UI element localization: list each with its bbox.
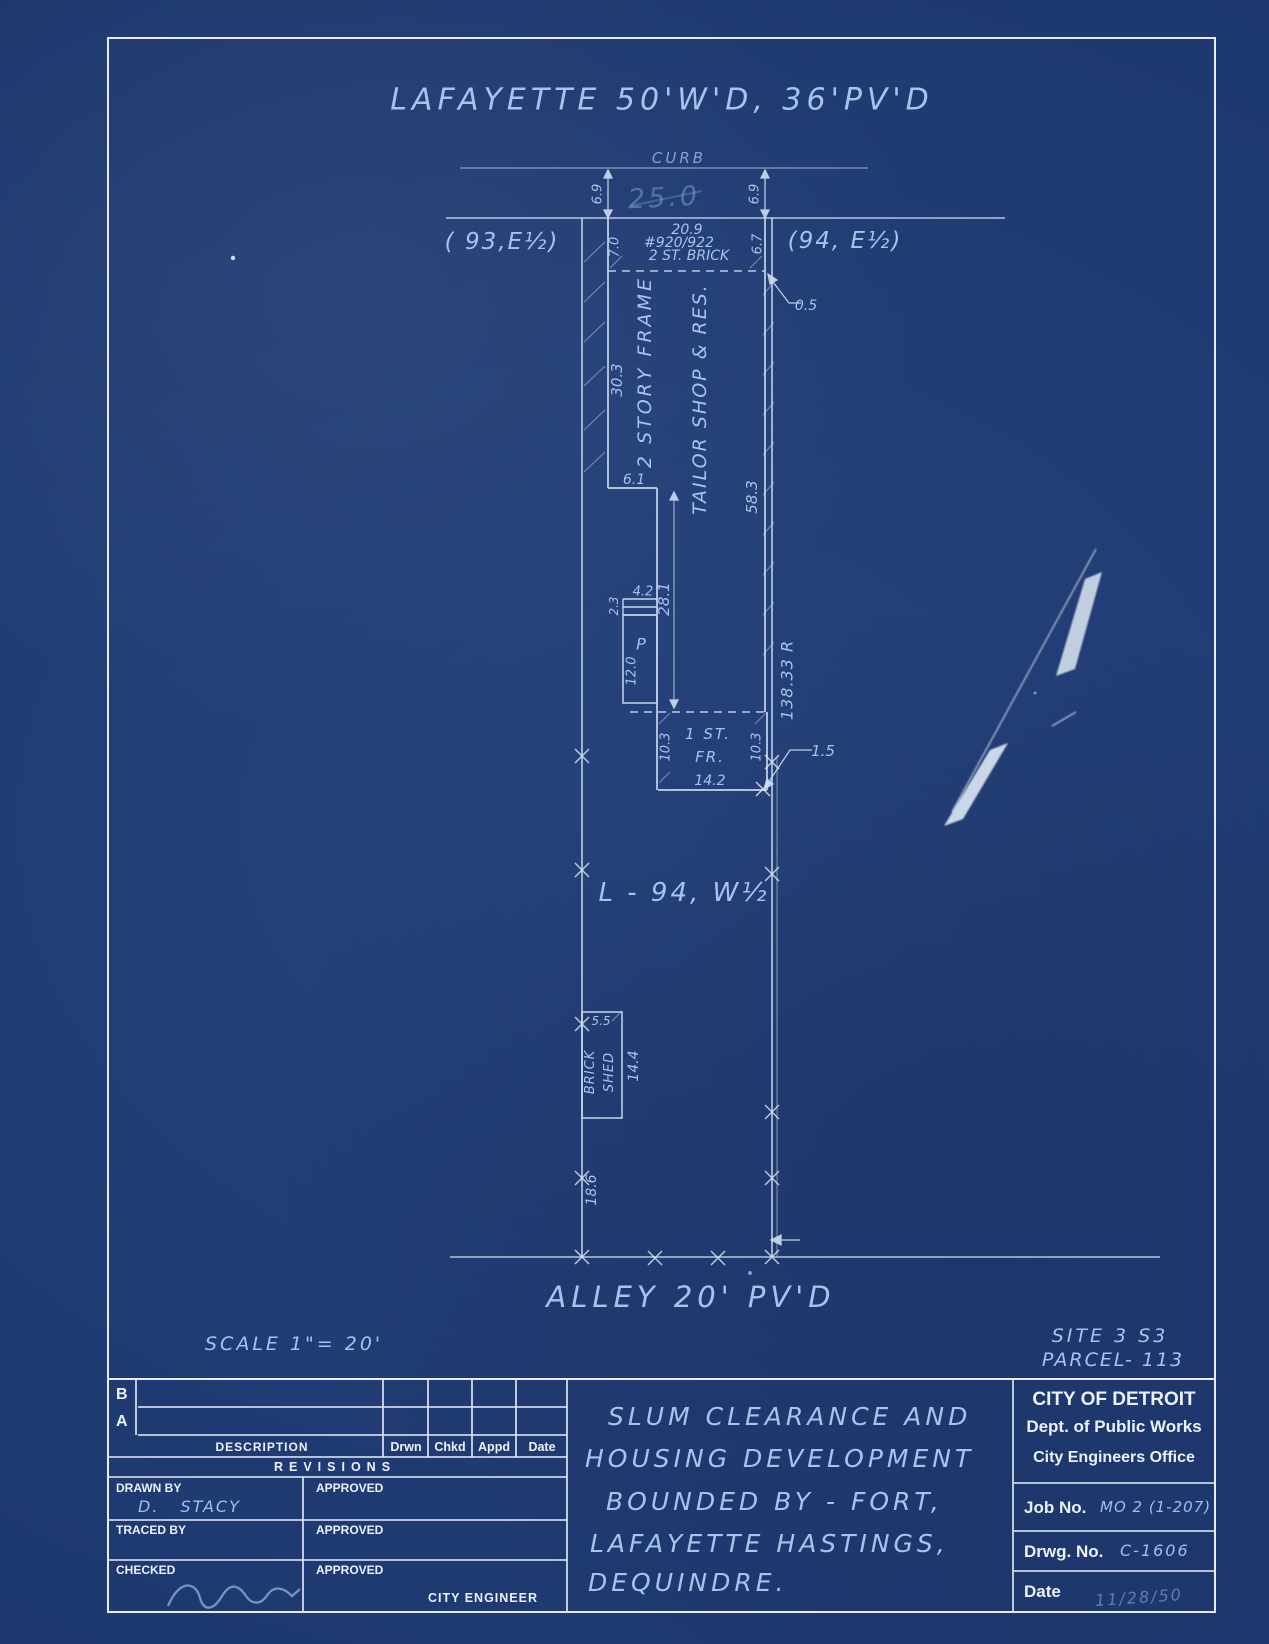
parcel-label: PARCEL- 113 <box>1042 1349 1184 1371</box>
revisions-title: REVISIONS <box>274 1460 396 1474</box>
dim-steps-depth: 2.3 <box>607 596 621 615</box>
revisions-col-drwn: Drwn <box>390 1440 421 1454</box>
dim-rear-offset: 1.5 <box>811 742 835 760</box>
dim-steps-width: 4.2 <box>633 585 654 600</box>
shed-label: BRICK SHED <box>582 1050 620 1094</box>
project-line1: SLUM CLEARANCE AND <box>608 1402 971 1431</box>
street-label: LAFAYETTE 50'W'D, 36'PV'D <box>390 83 934 118</box>
dim-rear-lot: 18.6 <box>584 1174 600 1205</box>
checked-label: CHECKED <box>116 1563 175 1577</box>
approved-label-1: APPROVED <box>316 1481 383 1495</box>
scale-label: SCALE 1"= 20' <box>205 1333 383 1355</box>
site-label: SITE 3 S3 <box>1052 1325 1169 1347</box>
date-label: Date <box>1024 1582 1061 1602</box>
dim-mid: 28.1 <box>655 582 673 615</box>
parcel-west-label: ( 93,E½) <box>445 229 560 255</box>
agency-office: City Engineers Office <box>1033 1449 1195 1467</box>
project-line5: DEQUINDRE. <box>588 1568 787 1597</box>
dim-rear-left: 10.3 <box>659 733 674 762</box>
rear-bldg-line2: FR. <box>695 748 725 766</box>
traced-by-label: TRACED BY <box>116 1523 186 1537</box>
rear-bldg-line1: 1 ST. <box>685 725 731 743</box>
revisions-col-appd: Appd <box>478 1440 510 1454</box>
job-no-value: MO 2 (1-207) <box>1100 1498 1211 1516</box>
job-no-label: Job No. <box>1024 1498 1086 1518</box>
property-lines <box>446 168 1160 1257</box>
porch-label: P <box>636 635 646 654</box>
curb-label: CURB <box>652 149 706 167</box>
drwg-no-label: Drwg. No. <box>1024 1542 1103 1562</box>
drawn-by-label: DRAWN BY <box>116 1481 181 1495</box>
lot-label: L - 94, W½ <box>599 878 770 908</box>
city-engineer-label: CITY ENGINEER <box>428 1591 538 1605</box>
checked-signature <box>168 1585 300 1607</box>
bldg-type-front: 2 ST. BRICK <box>649 248 729 264</box>
dim-step: 6.1 <box>623 472 645 488</box>
dim-rear-right: 10.3 <box>750 733 765 762</box>
approved-label-3: APPROVED <box>316 1563 383 1577</box>
dim-east-wall: 58.3 <box>743 480 761 513</box>
dim-curb-left: 6.9 <box>591 184 606 205</box>
alley-label: ALLEY 20' PV'D <box>546 1280 835 1314</box>
leader-1-5 <box>766 750 812 786</box>
bldg-frame-label: 2 STORY FRAME <box>634 276 656 468</box>
drwg-no-value: C-1606 <box>1120 1541 1190 1560</box>
dim-porch: 12.0 <box>625 657 640 686</box>
survey-marks <box>575 749 779 1265</box>
shed-dim-depth: 14.4 <box>626 1050 642 1081</box>
dim-curb-right: 6.9 <box>748 184 763 205</box>
dim-offset: 0.5 <box>795 298 817 314</box>
dim-rear-width: 14.2 <box>694 773 725 789</box>
revision-row-b-label: B <box>116 1386 128 1404</box>
lot-width-pencil: 25.0 <box>627 181 701 216</box>
sheet-border <box>108 38 1215 1612</box>
agency-name: CITY OF DETROIT <box>1032 1389 1195 1411</box>
dim-lot-depth: 138.33 R <box>778 640 797 720</box>
bldg-use-label: TAILOR SHOP & RES. <box>689 283 711 515</box>
revisions-col-chkd: Chkd <box>434 1440 465 1454</box>
blueprint-page: LAFAYETTE 50'W'D, 36'PV'D CURB 25.0 6.9 … <box>0 0 1269 1644</box>
parcel-east-label: (94, E½) <box>788 228 903 254</box>
project-line3: BOUNDED BY - FORT, <box>606 1487 943 1516</box>
project-line2: HOUSING DEVELOPMENT <box>585 1444 974 1473</box>
approved-label-2: APPROVED <box>316 1523 383 1537</box>
project-line4: LAFAYETTE HASTINGS, <box>590 1529 949 1558</box>
agency-dept: Dept. of Public Works <box>1026 1417 1201 1437</box>
revisions-col-date: Date <box>528 1440 555 1454</box>
dim-front-left: 7.0 <box>608 237 623 258</box>
shed-dim-width: 5.5 <box>591 1014 610 1028</box>
dim-front-right: 6.7 <box>751 234 766 255</box>
drawn-by-value: D. STACY <box>138 1497 241 1516</box>
revision-row-a-label: A <box>116 1413 128 1431</box>
dim-west-wall: 30.3 <box>608 363 626 396</box>
crease-artifact <box>944 549 1102 826</box>
revisions-col-description: DESCRIPTION <box>215 1440 308 1454</box>
porch-steps <box>623 599 657 615</box>
